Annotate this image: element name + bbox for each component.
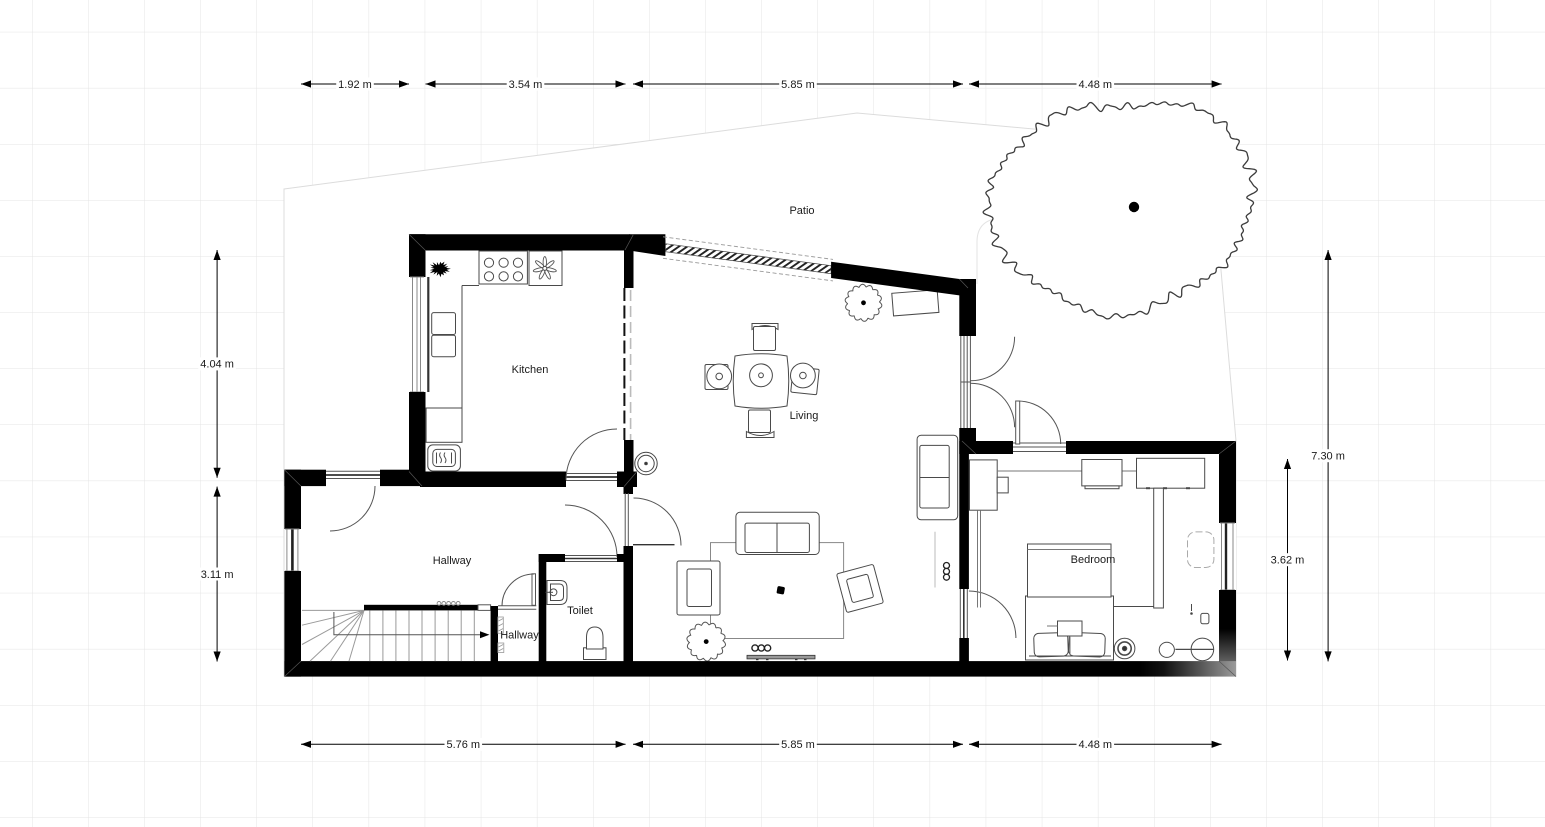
svg-text:1.92 m: 1.92 m [338, 79, 372, 91]
svg-text:3.11 m: 3.11 m [201, 569, 234, 581]
svg-text:Kitchen: Kitchen [512, 364, 549, 376]
svg-text:Hallway: Hallway [500, 630, 539, 642]
svg-text:Bedroom: Bedroom [1071, 554, 1116, 566]
svg-text:4.48 m: 4.48 m [1078, 79, 1112, 91]
svg-text:7.30 m: 7.30 m [1311, 451, 1345, 463]
svg-text:5.85 m: 5.85 m [781, 739, 815, 751]
svg-text:Hallway: Hallway [433, 555, 472, 567]
svg-text:5.85 m: 5.85 m [781, 79, 815, 91]
svg-text:3.54 m: 3.54 m [509, 79, 543, 91]
svg-text:4.48 m: 4.48 m [1078, 739, 1112, 751]
svg-text:Patio: Patio [789, 205, 814, 217]
svg-text:3.62 m: 3.62 m [1271, 555, 1305, 567]
svg-text:Toilet: Toilet [567, 605, 593, 617]
svg-text:4.04 m: 4.04 m [200, 359, 234, 371]
svg-text:5.76 m: 5.76 m [446, 739, 480, 751]
svg-text:Living: Living [790, 410, 819, 422]
